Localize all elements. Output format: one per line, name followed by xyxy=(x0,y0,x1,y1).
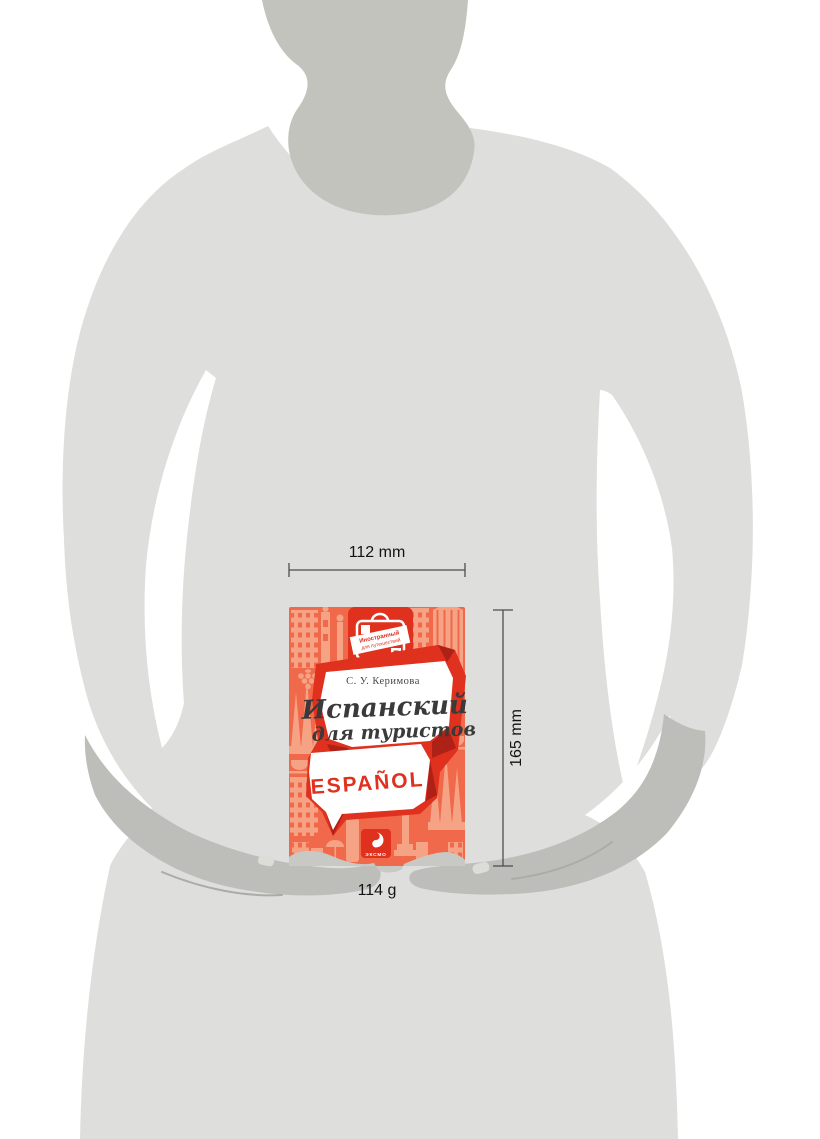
illustration-canvas: Иностранный для путешествий С. У. Керимо… xyxy=(0,0,820,1139)
weight-label: 114 g xyxy=(358,882,397,899)
book-cover: Иностранный для путешествий С. У. Керимо… xyxy=(289,602,476,866)
publisher-logo: ЭКСМО xyxy=(361,829,391,858)
width-label: 112 mm xyxy=(349,544,406,561)
product-dimensions-illustration: Иностранный для путешествий С. У. Керимо… xyxy=(0,0,820,1139)
title-speech-bubble: С. У. Керимова Испанский для туристов xyxy=(300,661,476,747)
publisher-name: ЭКСМО xyxy=(365,852,386,858)
height-label: 165 mm xyxy=(508,709,525,767)
author-name: С. У. Керимова xyxy=(346,676,420,687)
